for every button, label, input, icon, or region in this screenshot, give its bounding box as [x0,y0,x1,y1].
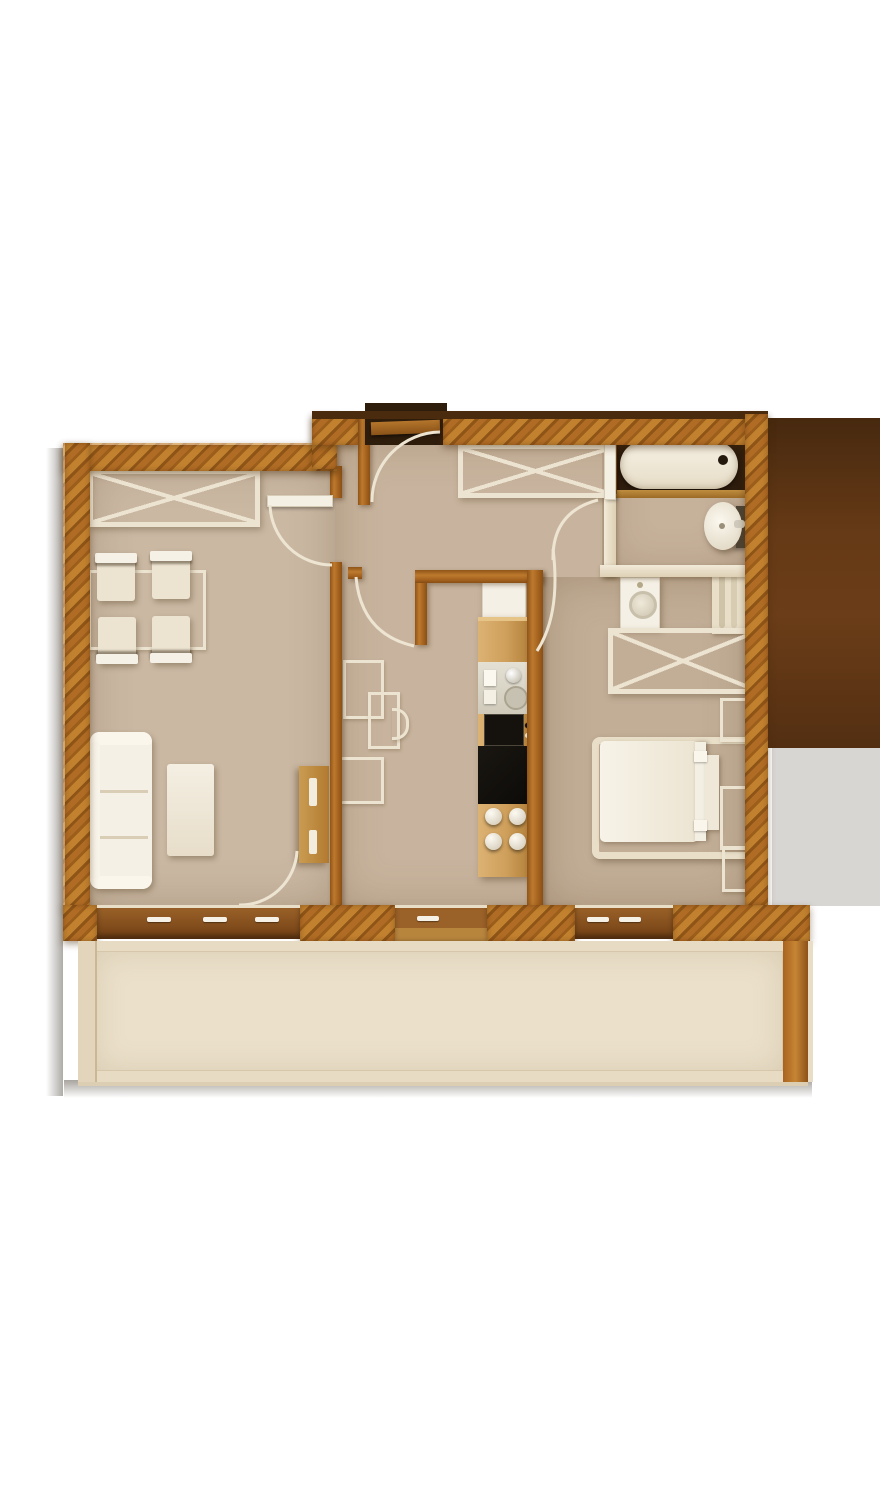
entrance-door-leaf [371,420,440,435]
bathroom-wall-bottom [600,565,748,577]
soap-bottle [484,690,496,704]
stove-knob [485,833,502,850]
cabinet-handle-slot [309,778,317,806]
washing-machine [620,577,660,629]
bed-hinge-tab [694,820,707,831]
kitchen-nook-wall-left [415,583,427,645]
dining-chair [152,616,190,663]
door-handle [417,916,439,921]
bathtub [620,441,738,489]
washer-knob [637,582,643,588]
radiator-slat [719,572,725,628]
sink-basin [504,686,528,710]
sofa-seat-divider [96,790,148,793]
chair-backrest [150,653,192,663]
balcony-right-wood-pillar [783,941,808,1082]
sofa-backrest [90,742,100,879]
chair-backrest [96,654,138,664]
soap-bottle [484,670,496,686]
right-dark-backdrop [768,418,880,748]
balcony-left-edge [78,941,97,1082]
chair-backrest [150,551,192,561]
sofa [90,732,152,889]
dining-chair [98,617,136,664]
kitchen-nook-wall-top [415,570,543,583]
wall-bottom-seg [673,905,810,941]
cooktop [478,746,528,804]
wall-top-dark-edge [312,411,768,419]
stove-knob [485,808,502,825]
bed-hinge-tab [694,751,707,762]
bed-mattress [600,741,698,842]
wall-bedroom-kitchen [527,570,543,908]
basin-drain [719,523,725,529]
wall-bottom-seg [300,905,395,941]
hall-balcony-door [395,905,487,944]
coffee-table [167,764,214,856]
radiator-slat [731,572,737,628]
window-handle [619,917,641,922]
bed-blanket [705,755,719,830]
window-handle [587,917,609,922]
floor-plan-stage [0,0,880,1500]
plan-left-shadow [46,448,63,1096]
living-door-leaf [267,495,333,507]
cabinet-handle-slot [309,830,317,854]
wall-right [745,414,768,906]
window-handle [147,917,171,922]
living-window [97,905,300,939]
balcony-right-edge [808,941,813,1082]
bathroom-door-leaf [604,440,616,500]
wall-left [63,443,90,909]
living-wardrobe-x [88,469,260,527]
fridge [482,577,526,620]
sofa-armrest [90,876,152,889]
counter-top-edge [478,617,528,621]
stove-knob [509,808,526,825]
right-gray-backdrop [772,748,880,906]
tub-faucet [718,455,728,465]
washer-door [629,591,657,619]
balcony-inner-deck [95,951,783,1071]
desk-wireframe [339,757,384,804]
chair-backrest [95,553,137,563]
utility-cabinet-x [608,628,758,694]
basin-faucet [734,520,745,528]
kitchen-counter [478,617,528,877]
window-handle [203,917,227,922]
bedroom-window [575,905,673,939]
hall-door-stub [348,567,362,579]
wall-bottom-seg [63,905,97,941]
wall-top-left [63,443,337,471]
side-cabinet-wood [299,766,329,863]
sofa-seat-divider [96,836,148,839]
hall-wardrobe-x [458,444,613,498]
oven [484,714,524,746]
tub-wood-sill [612,490,748,498]
faucet-knob [506,668,521,683]
stove-knob [509,833,526,850]
wall-living-hall [330,562,342,908]
window-handle [255,917,279,922]
dining-chair [152,551,190,599]
dining-chair [97,553,135,601]
wall-bottom-seg [487,905,575,941]
sink-module [478,662,528,714]
